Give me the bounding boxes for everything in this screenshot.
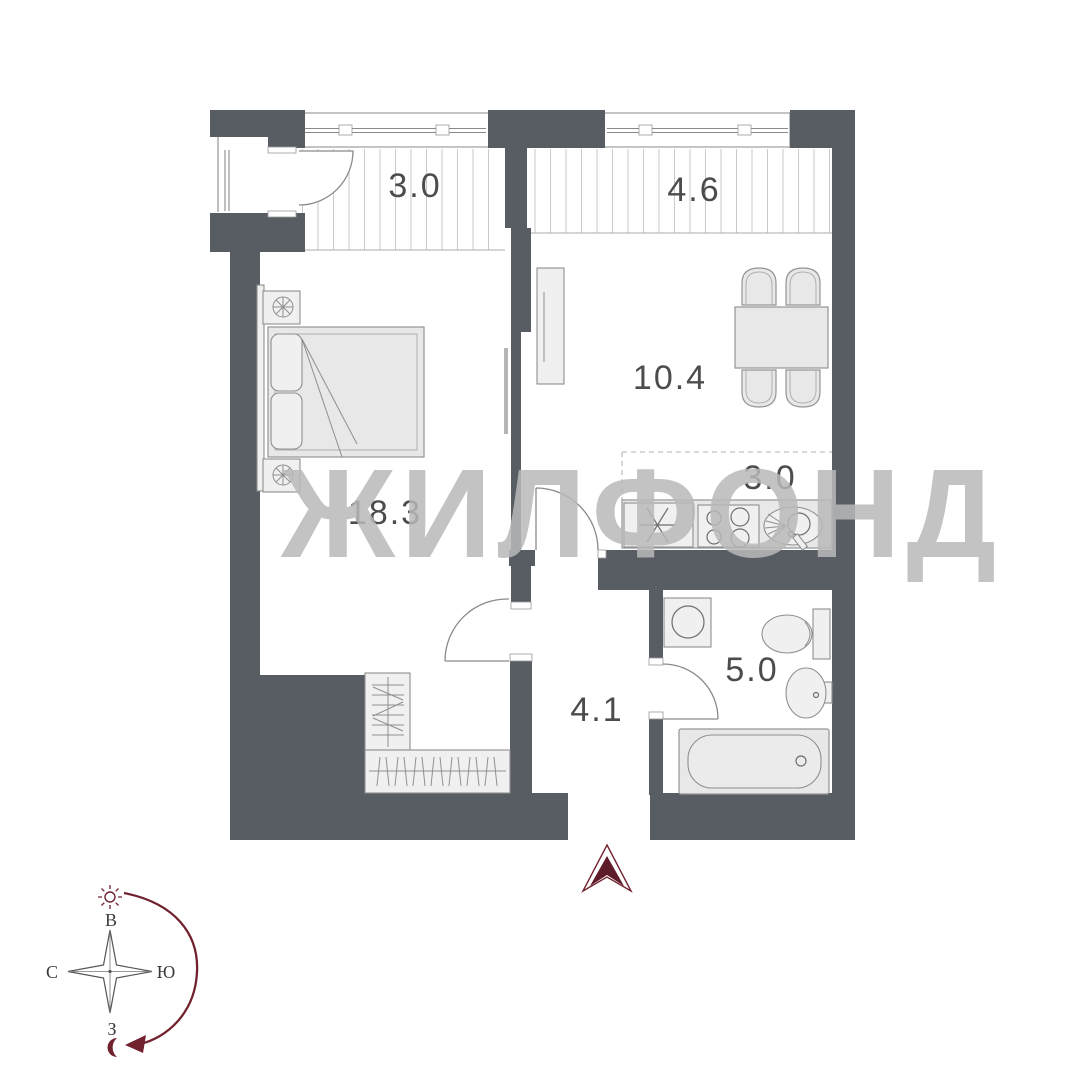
pillow xyxy=(271,334,302,391)
chair xyxy=(786,268,820,305)
dining-set xyxy=(735,268,828,407)
room-label-balcony-left: 3.0 xyxy=(388,167,441,205)
stove xyxy=(698,505,759,547)
floor-plan-page: 3.0 4.6 10.4 3.0 18.3 4.1 5.0 В С Ю З ЖИ… xyxy=(0,0,1080,1080)
mirror xyxy=(504,348,508,434)
compass-rose: В С Ю З xyxy=(46,885,197,1057)
bathroom-sink xyxy=(786,668,832,718)
chair xyxy=(742,268,776,305)
room-label-bedroom: 18.3 xyxy=(348,494,422,532)
kitchen-door xyxy=(536,488,598,550)
chair xyxy=(742,370,776,407)
sun-icon xyxy=(98,885,122,909)
kitchen-zone-boundary xyxy=(622,452,832,500)
side-window xyxy=(218,137,229,212)
room-label-hallway: 4.1 xyxy=(570,691,623,729)
room-label-kitchen-living: 10.4 xyxy=(633,359,707,397)
tall-cabinet xyxy=(537,268,564,384)
lamp-icon xyxy=(273,297,293,317)
washing-machine xyxy=(664,598,711,647)
pillow xyxy=(271,393,302,449)
bed xyxy=(257,285,424,492)
kitchen-counter xyxy=(622,500,832,550)
compass-east: В xyxy=(105,910,117,930)
entrance-arrow-icon xyxy=(583,845,631,891)
compass-north: С xyxy=(46,962,58,982)
floor-plan: 3.0 4.6 10.4 3.0 18.3 4.1 5.0 В С Ю З xyxy=(0,0,1080,1080)
room-label-kitchen-niche: 3.0 xyxy=(743,459,796,497)
chair xyxy=(786,370,820,407)
bathroom-door xyxy=(663,664,718,719)
dining-table xyxy=(735,307,828,368)
bathtub xyxy=(679,729,829,794)
compass-west: З xyxy=(107,1019,116,1039)
room-label-bathroom: 5.0 xyxy=(725,651,778,689)
balcony-hatching xyxy=(300,149,831,250)
toilet-tank xyxy=(813,609,830,659)
moon-icon xyxy=(108,1038,118,1057)
compass-south: Ю xyxy=(157,962,176,982)
bedroom-door xyxy=(445,599,509,661)
lamp-icon xyxy=(273,465,293,485)
room-label-balcony-right: 4.6 xyxy=(667,171,720,209)
wardrobe xyxy=(365,673,510,793)
